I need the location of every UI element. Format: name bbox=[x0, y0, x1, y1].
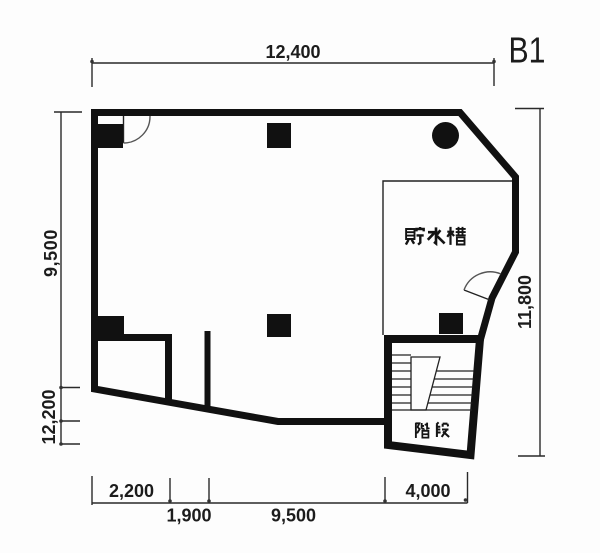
svg-text:11,800: 11,800 bbox=[515, 275, 535, 329]
svg-text:1,900: 1,900 bbox=[166, 506, 211, 526]
svg-text:4,000: 4,000 bbox=[405, 481, 450, 501]
svg-text:12,200: 12,200 bbox=[39, 389, 59, 444]
svg-text:12,400: 12,400 bbox=[265, 42, 320, 62]
svg-text:9,500: 9,500 bbox=[271, 506, 316, 526]
svg-text:B1: B1 bbox=[509, 30, 546, 71]
svg-text:9,500: 9,500 bbox=[41, 229, 61, 277]
svg-text:2,200: 2,200 bbox=[109, 481, 154, 501]
